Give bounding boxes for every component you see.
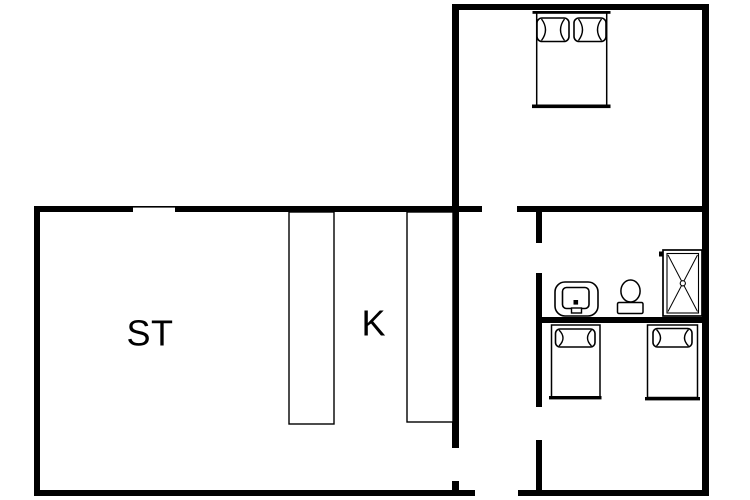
- svg-text:K: K: [362, 302, 386, 343]
- svg-text:ST: ST: [127, 313, 174, 354]
